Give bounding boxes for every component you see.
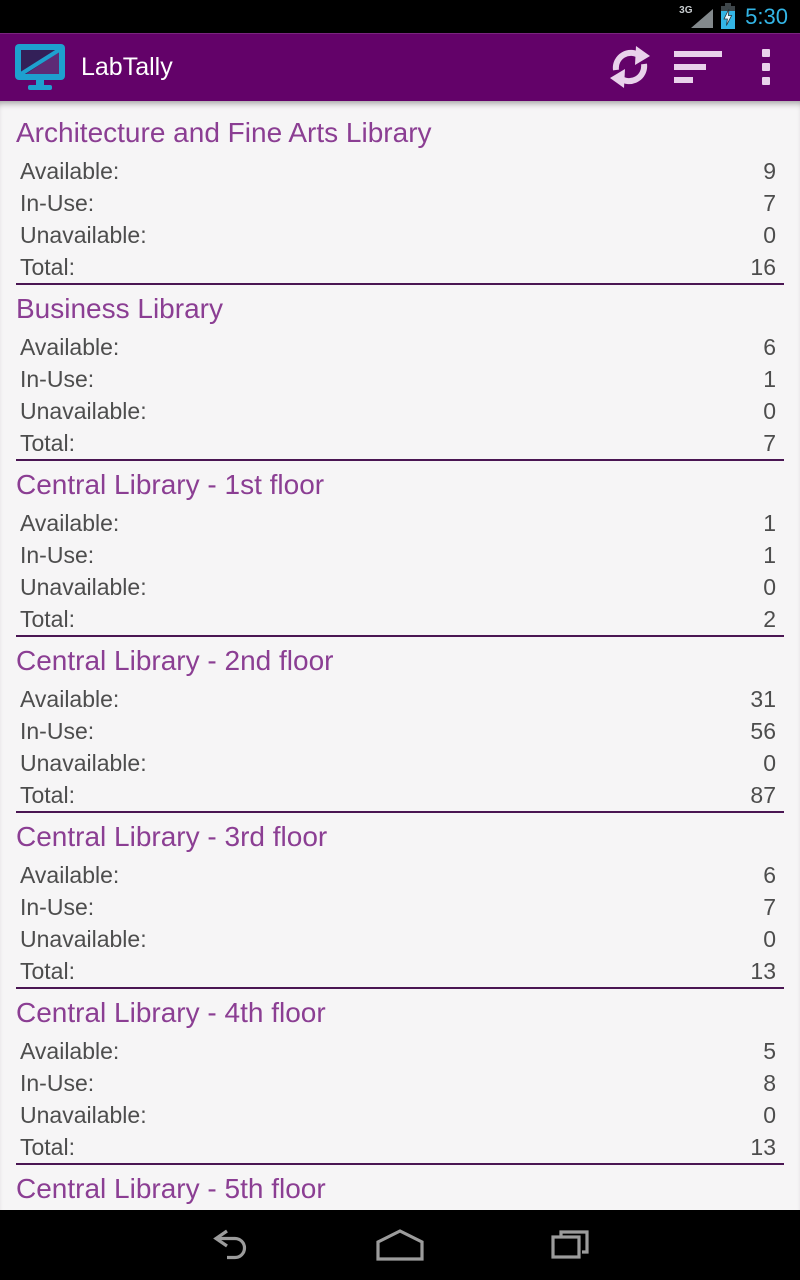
overflow-menu-icon bbox=[762, 49, 770, 85]
signal-indicator: 3G bbox=[679, 4, 713, 30]
library-section: Central Library - 2nd floor Available: 3… bbox=[16, 637, 784, 813]
stat-row-total: Total: 13 bbox=[16, 1131, 784, 1163]
stat-row-available: Available: 31 bbox=[16, 683, 784, 715]
stat-label: In-Use: bbox=[16, 542, 94, 569]
stat-row-in-use: In-Use: 8 bbox=[16, 1067, 784, 1099]
battery-charging-icon bbox=[720, 3, 736, 30]
action-bar: LabTally bbox=[0, 33, 800, 101]
stat-label: Total: bbox=[16, 958, 75, 985]
stat-value: 7 bbox=[763, 430, 784, 457]
library-section: Central Library - 4th floor Available: 5… bbox=[16, 989, 784, 1165]
stat-label: Unavailable: bbox=[16, 926, 147, 953]
stat-value: 8 bbox=[763, 1070, 784, 1097]
app-title: LabTally bbox=[81, 53, 173, 82]
sort-icon bbox=[674, 51, 722, 84]
stat-value: 31 bbox=[750, 686, 784, 713]
status-clock: 5:30 bbox=[745, 0, 788, 33]
stat-label: Unavailable: bbox=[16, 398, 147, 425]
stat-row-in-use: In-Use: 56 bbox=[16, 715, 784, 747]
stat-row-available: Available: 5 bbox=[16, 1035, 784, 1067]
stat-row-available: Available: 1 bbox=[16, 507, 784, 539]
stat-row-unavailable: Unavailable: 0 bbox=[16, 923, 784, 955]
sort-button[interactable] bbox=[664, 33, 732, 101]
signal-triangle-icon bbox=[691, 9, 713, 28]
stat-row-unavailable: Unavailable: 0 bbox=[16, 1099, 784, 1131]
stat-label: Available: bbox=[16, 1038, 119, 1065]
library-title: Central Library - 1st floor bbox=[16, 461, 784, 507]
stat-row-in-use: In-Use: 7 bbox=[16, 187, 784, 219]
stat-label: Unavailable: bbox=[16, 222, 147, 249]
stat-row-total: Total: 2 bbox=[16, 603, 784, 635]
stat-row-total: Total: 87 bbox=[16, 779, 784, 811]
library-title: Central Library - 4th floor bbox=[16, 989, 784, 1035]
stat-label: In-Use: bbox=[16, 1070, 94, 1097]
stat-value: 6 bbox=[763, 862, 784, 889]
stat-row-available: Available: 9 bbox=[16, 155, 784, 187]
stat-value: 1 bbox=[763, 542, 784, 569]
back-icon bbox=[210, 1228, 250, 1262]
library-section: Central Library - 3rd floor Available: 6… bbox=[16, 813, 784, 989]
stat-value: 0 bbox=[763, 926, 784, 953]
library-title: Business Library bbox=[16, 285, 784, 331]
refresh-icon bbox=[607, 44, 653, 90]
stat-value: 1 bbox=[763, 510, 784, 537]
stat-value: 6 bbox=[763, 334, 784, 361]
status-bar: 3G 5:30 bbox=[0, 0, 800, 33]
stat-value: 0 bbox=[763, 222, 784, 249]
stat-row-in-use: In-Use: 1 bbox=[16, 363, 784, 395]
stat-row-unavailable: Unavailable: 0 bbox=[16, 219, 784, 251]
back-button[interactable] bbox=[195, 1210, 265, 1280]
stat-row-unavailable: Unavailable: 0 bbox=[16, 395, 784, 427]
library-section: Business Library Available: 6 In-Use: 1 … bbox=[16, 285, 784, 461]
stat-label: Unavailable: bbox=[16, 750, 147, 777]
stat-value: 2 bbox=[763, 606, 784, 633]
stat-value: 0 bbox=[763, 574, 784, 601]
stat-label: Total: bbox=[16, 1134, 75, 1161]
library-section: Central Library - 5th floor bbox=[16, 1165, 784, 1210]
library-title: Central Library - 5th floor bbox=[16, 1165, 784, 1210]
stat-row-available: Available: 6 bbox=[16, 331, 784, 363]
stat-value: 5 bbox=[763, 1038, 784, 1065]
stat-row-total: Total: 13 bbox=[16, 955, 784, 987]
stat-label: In-Use: bbox=[16, 894, 94, 921]
stat-label: Total: bbox=[16, 782, 75, 809]
device-screen: 3G 5:30 LabTally bbox=[0, 0, 800, 1280]
navigation-bar bbox=[0, 1210, 800, 1280]
stat-value: 7 bbox=[763, 190, 784, 217]
library-title: Architecture and Fine Arts Library bbox=[16, 109, 784, 155]
library-section: Central Library - 1st floor Available: 1… bbox=[16, 461, 784, 637]
stat-label: Available: bbox=[16, 334, 119, 361]
stat-value: 13 bbox=[750, 958, 784, 985]
stat-value: 0 bbox=[763, 398, 784, 425]
library-section: Architecture and Fine Arts Library Avail… bbox=[16, 109, 784, 285]
overflow-menu-button[interactable] bbox=[732, 33, 800, 101]
stat-value: 7 bbox=[763, 894, 784, 921]
stat-row-in-use: In-Use: 1 bbox=[16, 539, 784, 571]
stat-row-unavailable: Unavailable: 0 bbox=[16, 747, 784, 779]
stat-label: Unavailable: bbox=[16, 1102, 147, 1129]
home-button[interactable] bbox=[365, 1210, 435, 1280]
stat-value: 16 bbox=[750, 254, 784, 281]
stat-label: Available: bbox=[16, 686, 119, 713]
stat-value: 1 bbox=[763, 366, 784, 393]
stat-label: In-Use: bbox=[16, 366, 94, 393]
stat-label: Available: bbox=[16, 158, 119, 185]
stat-label: Total: bbox=[16, 430, 75, 457]
stat-label: Total: bbox=[16, 254, 75, 281]
stat-row-in-use: In-Use: 7 bbox=[16, 891, 784, 923]
stat-label: Unavailable: bbox=[16, 574, 147, 601]
library-title: Central Library - 3rd floor bbox=[16, 813, 784, 859]
stat-label: Available: bbox=[16, 510, 119, 537]
recents-button[interactable] bbox=[535, 1210, 605, 1280]
stat-row-total: Total: 16 bbox=[16, 251, 784, 283]
stat-value: 13 bbox=[750, 1134, 784, 1161]
refresh-button[interactable] bbox=[596, 33, 664, 101]
stat-value: 87 bbox=[750, 782, 784, 809]
stat-row-total: Total: 7 bbox=[16, 427, 784, 459]
stat-label: In-Use: bbox=[16, 190, 94, 217]
library-list: Architecture and Fine Arts Library Avail… bbox=[0, 101, 800, 1210]
stat-label: In-Use: bbox=[16, 718, 94, 745]
stat-value: 0 bbox=[763, 1102, 784, 1129]
stat-value: 56 bbox=[750, 718, 784, 745]
recents-icon bbox=[550, 1229, 590, 1261]
stat-value: 9 bbox=[763, 158, 784, 185]
stat-value: 0 bbox=[763, 750, 784, 777]
stat-row-unavailable: Unavailable: 0 bbox=[16, 571, 784, 603]
home-icon bbox=[375, 1228, 425, 1262]
app-monitor-icon[interactable] bbox=[14, 43, 66, 91]
stat-label: Total: bbox=[16, 606, 75, 633]
library-title: Central Library - 2nd floor bbox=[16, 637, 784, 683]
stat-row-available: Available: 6 bbox=[16, 859, 784, 891]
stat-label: Available: bbox=[16, 862, 119, 889]
